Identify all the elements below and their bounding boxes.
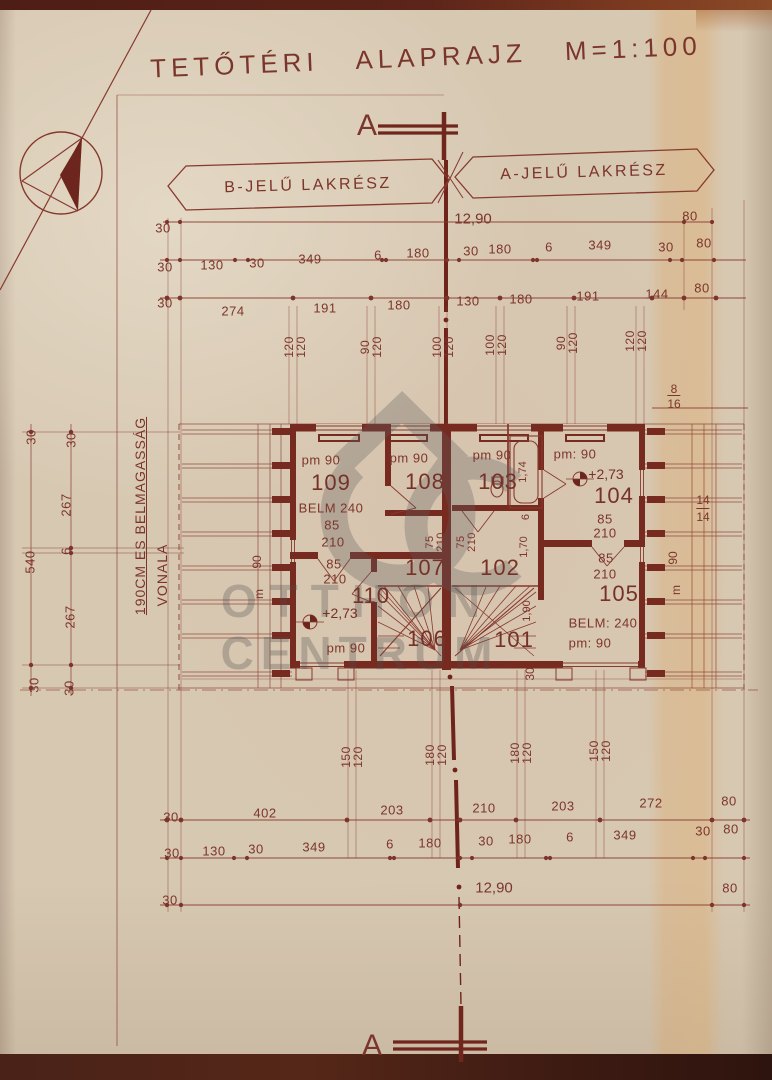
window-dim-pair: 100120	[431, 336, 455, 358]
window-dim-pair: 180120	[424, 744, 448, 766]
dim-label: 80	[682, 209, 697, 224]
dim-label: 6	[566, 830, 574, 845]
dim-label: 191	[313, 301, 336, 316]
room-103-number: 103	[478, 469, 518, 495]
dim-label: 180	[509, 292, 532, 307]
dim-label: 30	[164, 846, 179, 861]
window-dim-pair: 150120	[588, 740, 612, 762]
door-dim-pair: 75210	[425, 532, 447, 552]
dim-label: 6	[59, 547, 74, 555]
section-letter-bottom: A	[362, 1029, 382, 1063]
door-height: 210	[321, 535, 344, 550]
room-105-height: BELM: 240	[569, 616, 638, 631]
window-dim-pair: 120120	[624, 330, 648, 352]
blueprint-page: OTTHON CENTRUM TETŐTÉRI ALAPRAJZ M=1:100…	[0, 0, 772, 1080]
overall-width-top: 12,90	[454, 211, 492, 228]
dim-label: 30	[155, 221, 170, 236]
dim-label: 274	[221, 304, 244, 319]
window-dim-pair: 90120	[359, 336, 383, 358]
dim-label: 120	[443, 336, 455, 358]
dim-label: 30	[24, 429, 39, 444]
window-axes-top	[289, 306, 644, 424]
dim-label: 349	[613, 828, 636, 843]
rafter-size-denominator: 16	[667, 395, 680, 411]
dim-label: 130	[200, 258, 223, 273]
dim-label: 349	[302, 840, 325, 855]
room-101-number: 101	[494, 627, 534, 653]
room-105-number: 105	[599, 581, 639, 607]
room-104-level: +2,73	[588, 466, 623, 482]
dim-label: 349	[298, 252, 321, 267]
dim-label: 210	[472, 801, 495, 816]
headroom-note-line2: VONALA	[154, 544, 170, 607]
room-102-number: 102	[480, 555, 520, 581]
room-109-parapet: pm 90	[302, 453, 341, 468]
dim-label: 6	[545, 240, 553, 255]
dim-label: 30	[157, 260, 172, 275]
room-105-parapet: pm: 90	[569, 636, 612, 651]
dim-label: 349	[588, 238, 611, 253]
room-109-height: BELM 240	[299, 501, 364, 516]
section-marker-bottom	[393, 1006, 487, 1062]
room-107-number: 107	[405, 555, 445, 581]
overall-width-bottom: 12,90	[475, 880, 513, 897]
door-height: 210	[323, 572, 346, 587]
dim-label: 30	[163, 810, 178, 825]
dim-label: 30	[478, 834, 493, 849]
headroom-note-line1: 190CM ES BELMAGASSÁG	[132, 417, 148, 615]
dim-label: 130	[202, 844, 225, 859]
dim-label: 30	[658, 240, 673, 255]
dim-label: 1,90	[521, 600, 533, 621]
dim-label: 90	[666, 551, 680, 564]
dim-label: m	[252, 589, 266, 599]
room-104-number: 104	[594, 483, 634, 509]
dim-label: 80	[696, 236, 711, 251]
dim-label: 267	[59, 493, 74, 516]
dim-label: 120	[371, 336, 383, 358]
room-110-level: +2,73	[322, 605, 357, 621]
dim-label: 402	[253, 806, 276, 821]
window-dim-pair: 120120	[283, 336, 307, 358]
dim-label: 30	[248, 842, 263, 857]
dim-label: 1,70	[518, 536, 530, 557]
door-dim-pair: 75210	[456, 532, 478, 552]
dim-label: 180	[488, 242, 511, 257]
dim-label: 120	[567, 332, 579, 354]
purlin-size-bottom: 14	[696, 508, 709, 524]
dim-label: 80	[721, 794, 736, 809]
window-dim-pair: 180120	[509, 742, 533, 764]
dim-label: 80	[723, 822, 738, 837]
dim-label: 30	[695, 824, 710, 839]
dim-label: m	[669, 585, 683, 595]
rafter-size-numerator: 8	[671, 382, 678, 396]
dim-label: 80	[722, 881, 737, 896]
tub-length: 1,74	[517, 461, 529, 482]
door-width: 85	[326, 557, 341, 572]
dim-label: 120	[496, 334, 508, 356]
dim-label: 30	[523, 667, 537, 680]
dim-label: 30	[62, 680, 77, 695]
section-marker-top	[378, 112, 458, 160]
dim-label: 180	[387, 298, 410, 313]
dim-label: 120	[600, 740, 612, 762]
room-103-parapet: pm 90	[473, 448, 512, 463]
dim-label: 272	[639, 796, 662, 811]
room-104-parapet: pm: 90	[554, 447, 597, 462]
room-108-number: 108	[405, 469, 445, 495]
dim-label: 191	[576, 289, 599, 304]
dim-label: 120	[636, 330, 648, 352]
door-height: 210	[593, 567, 616, 582]
dim-label: 210	[436, 532, 447, 552]
dim-label: 144	[645, 287, 668, 302]
purlin-size-top: 14	[696, 493, 709, 507]
dim-label: 30	[249, 256, 264, 271]
dim-label: 120	[295, 336, 307, 358]
dim-label: 30	[463, 244, 478, 259]
dim-label: 180	[418, 836, 441, 851]
dim-label: 6	[520, 514, 532, 520]
dim-label: 80	[694, 281, 709, 296]
room-110-parapet: pm 90	[327, 641, 366, 656]
door-width: 85	[598, 551, 613, 566]
section-letter-top: A	[357, 109, 377, 143]
dim-label: 210	[467, 532, 478, 552]
room-109-number: 109	[311, 470, 351, 496]
room-106-number: 106	[407, 626, 447, 652]
door-height: 210	[593, 526, 616, 541]
room-108-parapet: pm 90	[390, 451, 429, 466]
dim-label: 120	[521, 742, 533, 764]
door-width: 85	[597, 512, 612, 527]
dim-label: 180	[508, 832, 531, 847]
dim-label: 203	[551, 799, 574, 814]
window-dim-pair: 150120	[340, 746, 364, 768]
dim-label: 6	[374, 248, 382, 263]
dim-label: 267	[63, 605, 78, 628]
dim-label: 30	[157, 296, 172, 311]
dim-label: 130	[456, 294, 479, 309]
window-dim-pair: 90120	[555, 332, 579, 354]
dim-label: 180	[406, 246, 429, 261]
door-width: 85	[324, 518, 339, 533]
dim-label: 6	[386, 837, 394, 852]
dim-label: 30	[162, 893, 177, 908]
dim-label: 90	[250, 555, 264, 568]
window-dim-pair: 100120	[484, 334, 508, 356]
bottom-dim-lines	[160, 820, 750, 905]
dim-label: 540	[23, 550, 38, 573]
dim-label: 30	[64, 432, 79, 447]
dim-label: 203	[380, 803, 403, 818]
north-arrow-icon	[20, 132, 102, 214]
dim-label: 120	[352, 746, 364, 768]
dim-label: 30	[27, 677, 42, 692]
dim-label: 120	[436, 744, 448, 766]
